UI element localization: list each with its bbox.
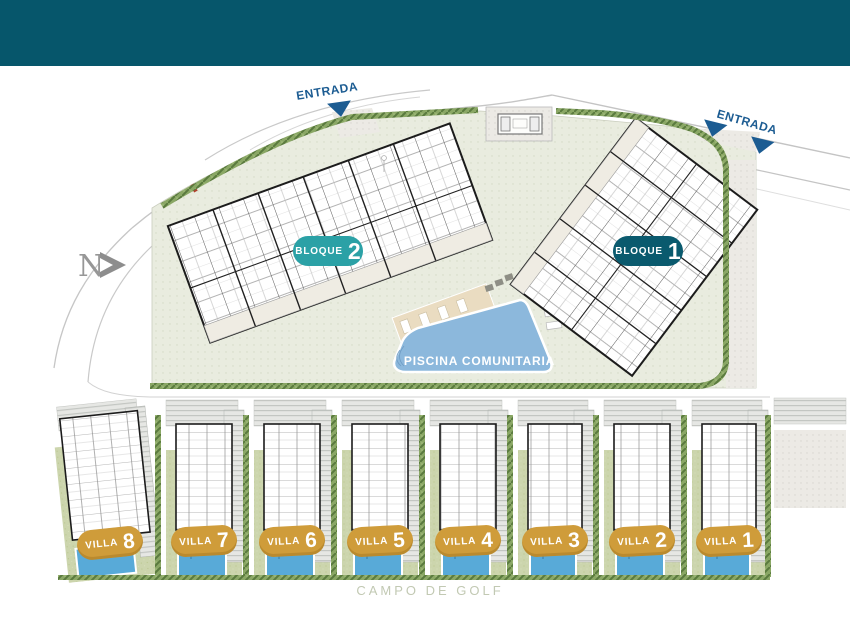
villa-3-badge[interactable]: VILLA 3: [521, 524, 588, 557]
right-terraces: [774, 398, 846, 508]
villa-3-label: VILLA: [530, 535, 563, 548]
villa-3-number: 3: [568, 529, 581, 551]
bloque-2-badge[interactable]: BLOQUE 2: [293, 236, 363, 266]
villa-2-badge[interactable]: VILLA 2: [608, 524, 675, 557]
villa-2-number: 2: [655, 529, 668, 551]
siteplan-page: ENTRADA ENTRADA N BLOQUE 2 BLOQUE 1 PISC…: [0, 0, 850, 620]
villa-2-label: VILLA: [617, 535, 650, 548]
villa-5-badge[interactable]: VILLA 5: [346, 524, 413, 557]
bloque-2-label: BLOQUE: [295, 246, 343, 257]
villa-5-label: VILLA: [355, 535, 388, 548]
bloque-1-number: 1: [668, 240, 681, 263]
villa-6-number: 6: [305, 529, 318, 551]
villa-7-number: 7: [217, 529, 230, 551]
bloque-1-badge[interactable]: BLOQUE 1: [613, 236, 683, 266]
villa-4-badge[interactable]: VILLA 4: [434, 524, 501, 557]
villa-7-label: VILLA: [179, 535, 212, 548]
villa-1-badge[interactable]: VILLA 1: [695, 524, 762, 557]
villa-1-number: 1: [742, 529, 755, 551]
villa-4-label: VILLA: [443, 535, 476, 548]
header-bar: [0, 0, 850, 66]
villa-8-number: 8: [122, 530, 136, 552]
bloque-2-number: 2: [348, 240, 361, 263]
villa-5-number: 5: [393, 529, 406, 551]
villa-4-number: 4: [481, 529, 494, 551]
entrance-plaza: [486, 107, 552, 141]
villa-8-label: VILLA: [85, 537, 119, 551]
villa-7-badge[interactable]: VILLA 7: [170, 524, 237, 557]
bloque-1-label: BLOQUE: [615, 246, 663, 257]
golf-course-label: CAMPO DE GOLF: [320, 583, 540, 598]
villa-1-label: VILLA: [704, 535, 737, 548]
north-arrow-notch: [100, 258, 113, 272]
villa-6-label: VILLA: [267, 535, 300, 548]
villa-6-badge[interactable]: VILLA 6: [258, 524, 325, 557]
pool-label: PISCINA COMUNITARIA: [392, 354, 567, 368]
